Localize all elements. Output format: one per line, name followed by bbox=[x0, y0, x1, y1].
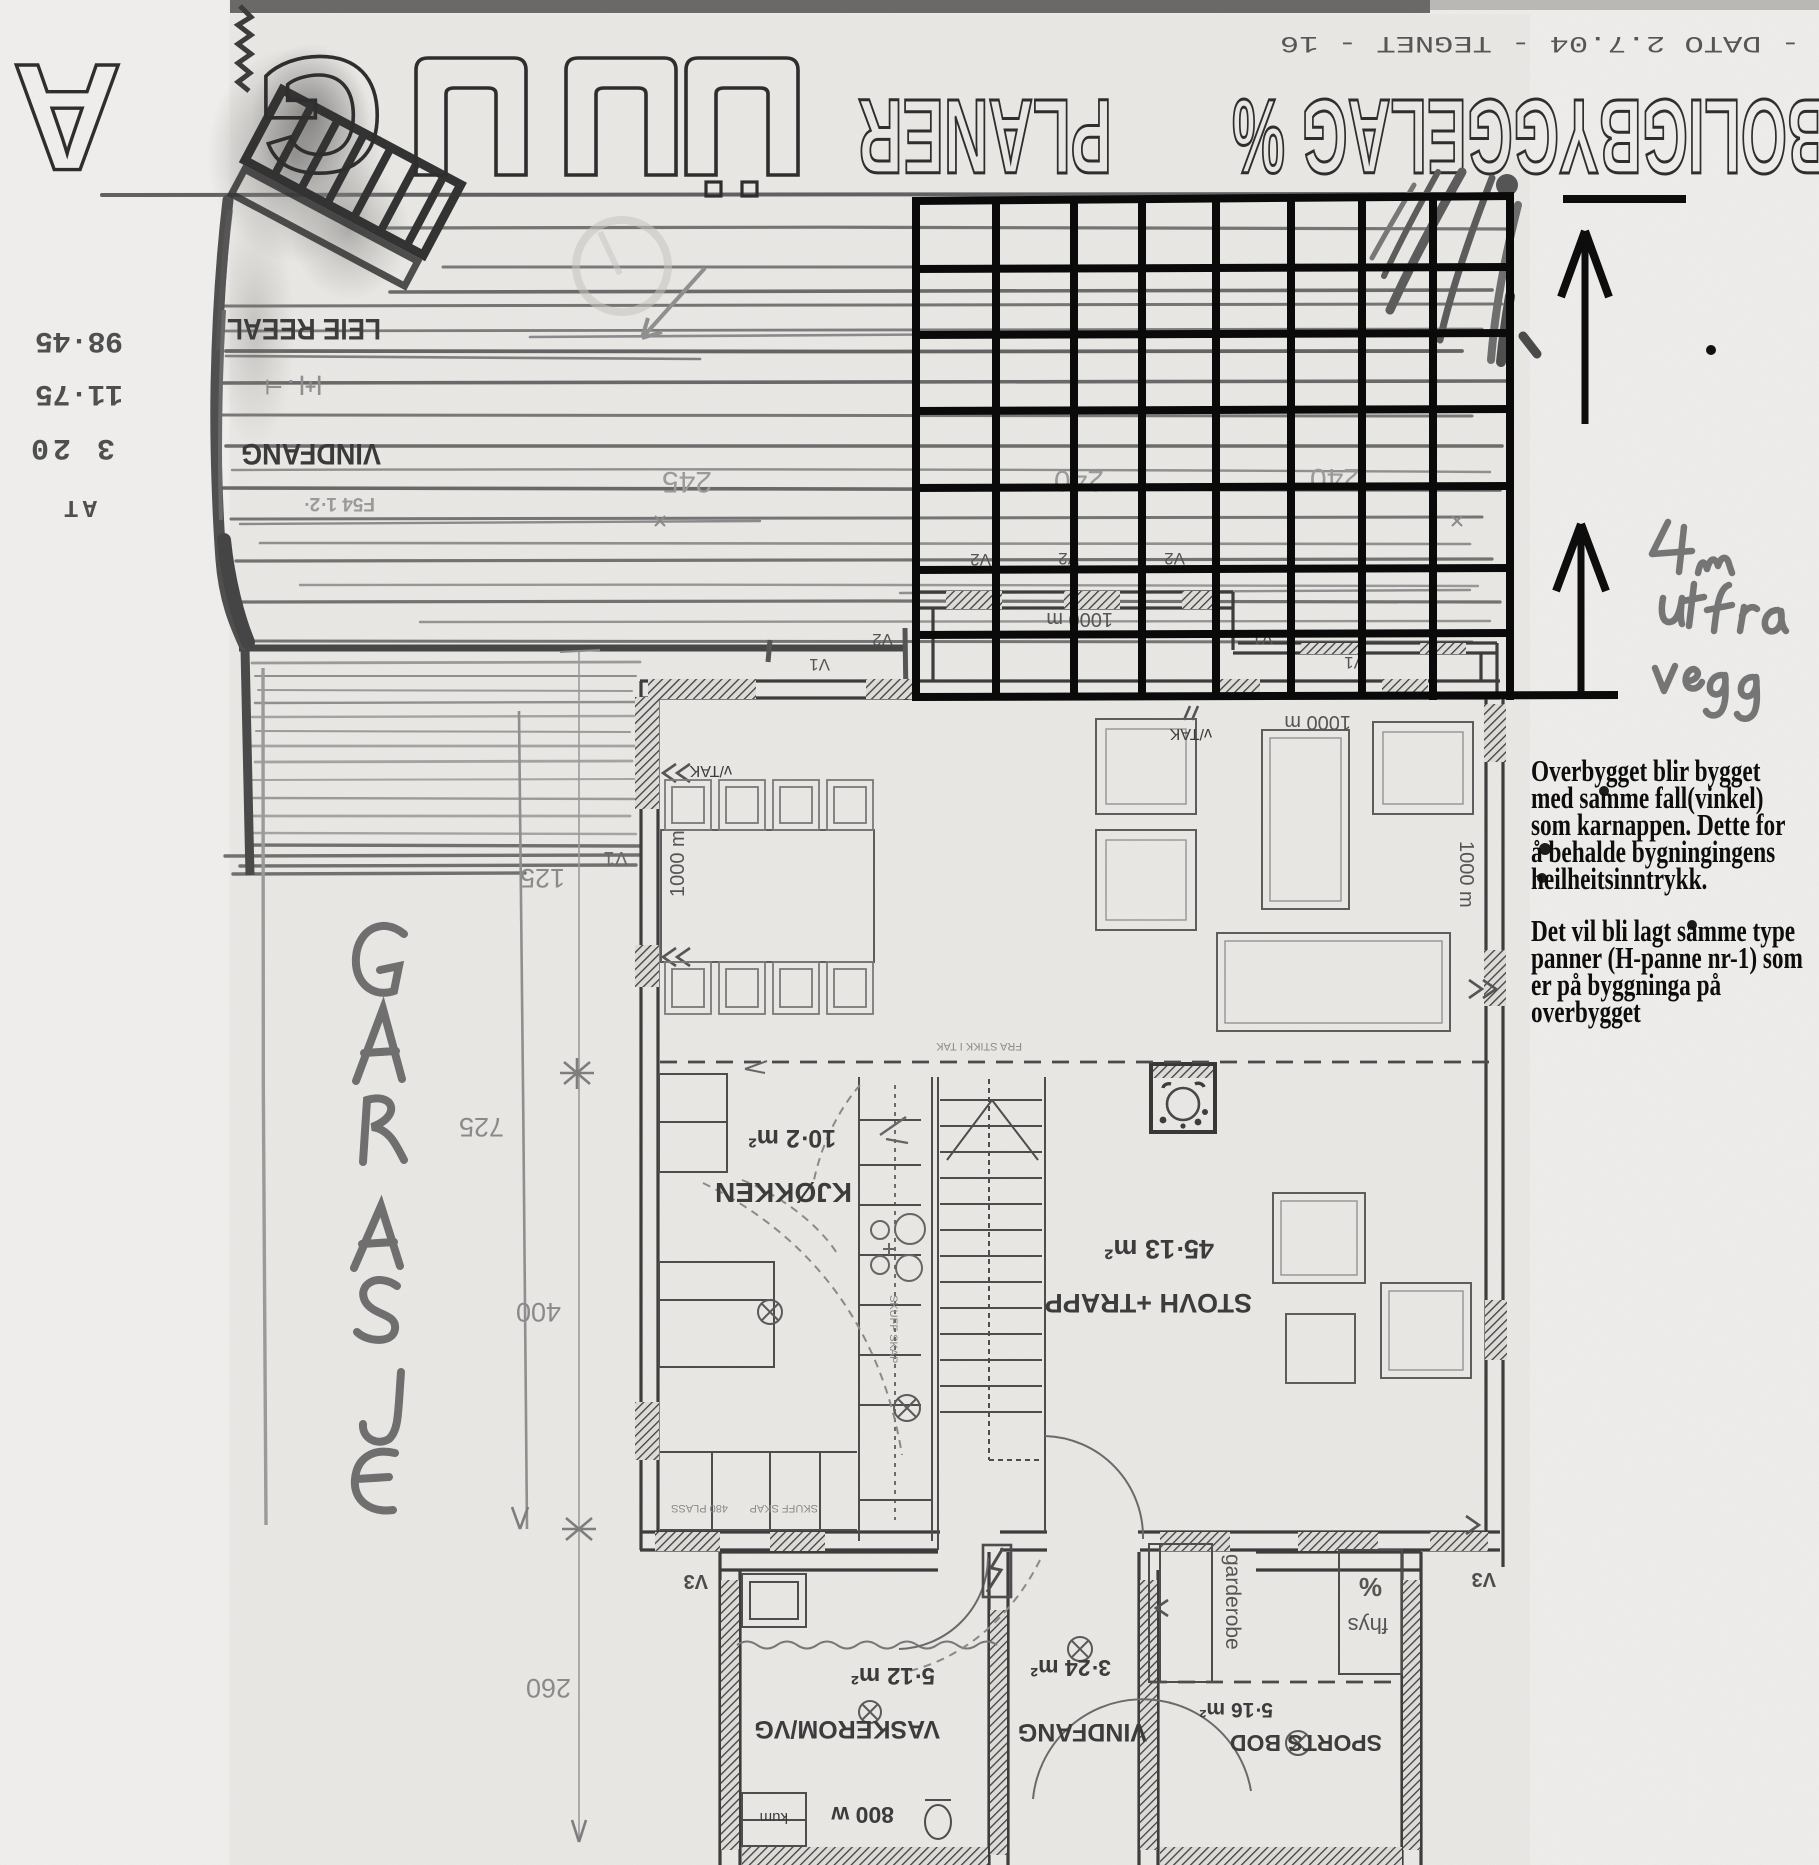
svg-text:5·16 m²: 5·16 m² bbox=[1199, 1698, 1273, 1721]
svg-text:V1: V1 bbox=[809, 655, 830, 674]
svg-text:725: 725 bbox=[459, 1112, 504, 1142]
svg-text:SKUFF SKAP: SKUFF SKAP bbox=[750, 1502, 818, 1514]
svg-text:240: 240 bbox=[1054, 464, 1104, 497]
svg-text:KJØKKEN: KJØKKEN bbox=[715, 1177, 852, 1208]
svg-text:PLANER: PLANER bbox=[858, 77, 1112, 195]
svg-text:400: 400 bbox=[516, 1297, 561, 1327]
svg-text:5·12 m²: 5·12 m² bbox=[851, 1662, 935, 1689]
svg-text:VINDFANG: VINDFANG bbox=[241, 437, 381, 470]
svg-text:FRA STIKK I TAK: FRA STIKK I TAK bbox=[936, 1040, 1022, 1052]
svg-text:245: 245 bbox=[662, 465, 712, 498]
svg-text:V2: V2 bbox=[872, 630, 893, 649]
svg-text:45·13 m²: 45·13 m² bbox=[1104, 1234, 1214, 1264]
svg-text:%: % bbox=[1359, 1572, 1382, 1602]
svg-text:VINDFANG: VINDFANG bbox=[1018, 1718, 1147, 1746]
svg-text:v/TAK: v/TAK bbox=[1169, 725, 1212, 742]
svg-text:V3: V3 bbox=[684, 1570, 708, 1592]
svg-text:3·24 m²: 3·24 m² bbox=[1030, 1655, 1111, 1681]
svg-text:v/TAK: v/TAK bbox=[689, 762, 732, 779]
svg-text:125: 125 bbox=[520, 863, 565, 893]
svg-text:260: 260 bbox=[526, 1673, 571, 1703]
svg-text:garderobe: garderobe bbox=[1221, 1554, 1244, 1650]
svg-text:V3: V3 bbox=[1472, 1568, 1496, 1590]
svg-text:- DATO 2.7.04 - TEGNET - 16: - DATO 2.7.04 - TEGNET - 16 bbox=[1280, 30, 1800, 56]
svg-text:|+| . ⊣: |+| . ⊣ bbox=[265, 375, 322, 397]
svg-text:kum: kum bbox=[760, 1809, 788, 1826]
svg-text:SPORTS BOD: SPORTS BOD bbox=[1230, 1730, 1382, 1756]
svg-text:BOLIGBYGGELAG %: BOLIGBYGGELAG % bbox=[1232, 77, 1819, 195]
svg-text:SKUFF SKAP: SKUFF SKAP bbox=[887, 1295, 899, 1363]
svg-text:fhys: fhys bbox=[1348, 1613, 1388, 1638]
svg-text:LEIE REEAL: LEIE REEAL bbox=[227, 312, 381, 345]
svg-text:480 PLASS: 480 PLASS bbox=[671, 1502, 728, 1514]
svg-text:10·2 m²: 10·2 m² bbox=[748, 1124, 836, 1152]
svg-text:11·75: 11·75 bbox=[35, 376, 123, 410]
svg-text:800 w: 800 w bbox=[831, 1802, 894, 1828]
svg-text:98·45: 98·45 bbox=[35, 323, 123, 357]
svg-text:F54 1·2·: F54 1·2· bbox=[303, 493, 375, 514]
svg-text:1000 m: 1000 m bbox=[1284, 711, 1351, 733]
svg-text:1000 m: 1000 m bbox=[1455, 841, 1477, 908]
svg-text:A: A bbox=[12, 32, 122, 202]
svg-text:VASKEROM/VG: VASKEROM/VG bbox=[754, 1715, 940, 1743]
svg-text:G: G bbox=[256, 23, 384, 207]
svg-text:1000 m: 1000 m bbox=[1046, 608, 1113, 630]
svg-text:STOVH +TRAPP: STOVH +TRAPP bbox=[1045, 1288, 1252, 1318]
svg-text:1000 m: 1000 m bbox=[667, 830, 689, 897]
svg-text:V1: V1 bbox=[604, 847, 628, 869]
